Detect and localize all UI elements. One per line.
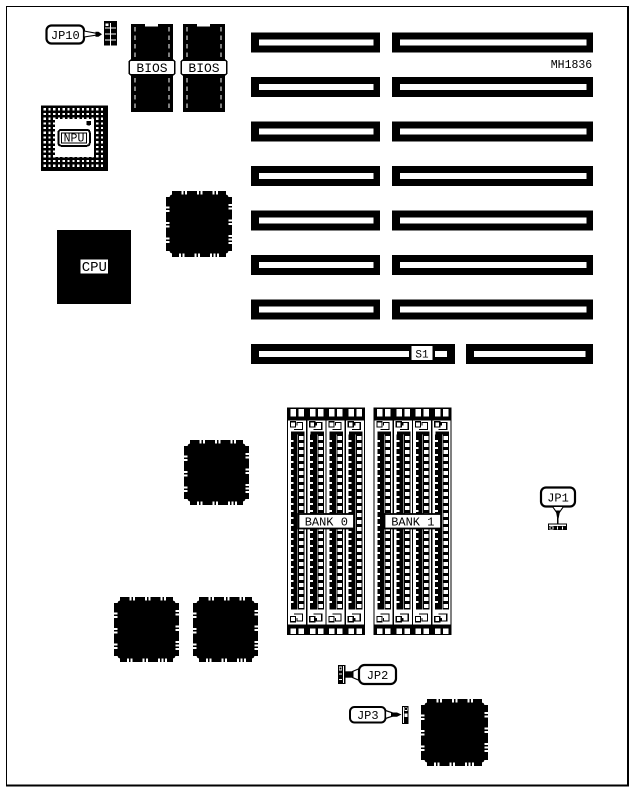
svg-text:MH1836: MH1836 <box>551 59 593 72</box>
svg-text:JP10: JP10 <box>51 29 80 43</box>
svg-text:BIOS: BIOS <box>136 61 167 76</box>
svg-text:CPU: CPU <box>82 260 107 276</box>
svg-text:JP2: JP2 <box>367 669 389 683</box>
svg-text:BANK 0: BANK 0 <box>305 515 348 529</box>
svg-text:S1: S1 <box>415 349 429 361</box>
svg-text:JP1: JP1 <box>547 492 569 506</box>
svg-text:NPU: NPU <box>64 132 85 145</box>
svg-text:BIOS: BIOS <box>188 61 219 76</box>
svg-text:BANK 1: BANK 1 <box>391 515 434 529</box>
svg-text:JP3: JP3 <box>357 709 379 723</box>
